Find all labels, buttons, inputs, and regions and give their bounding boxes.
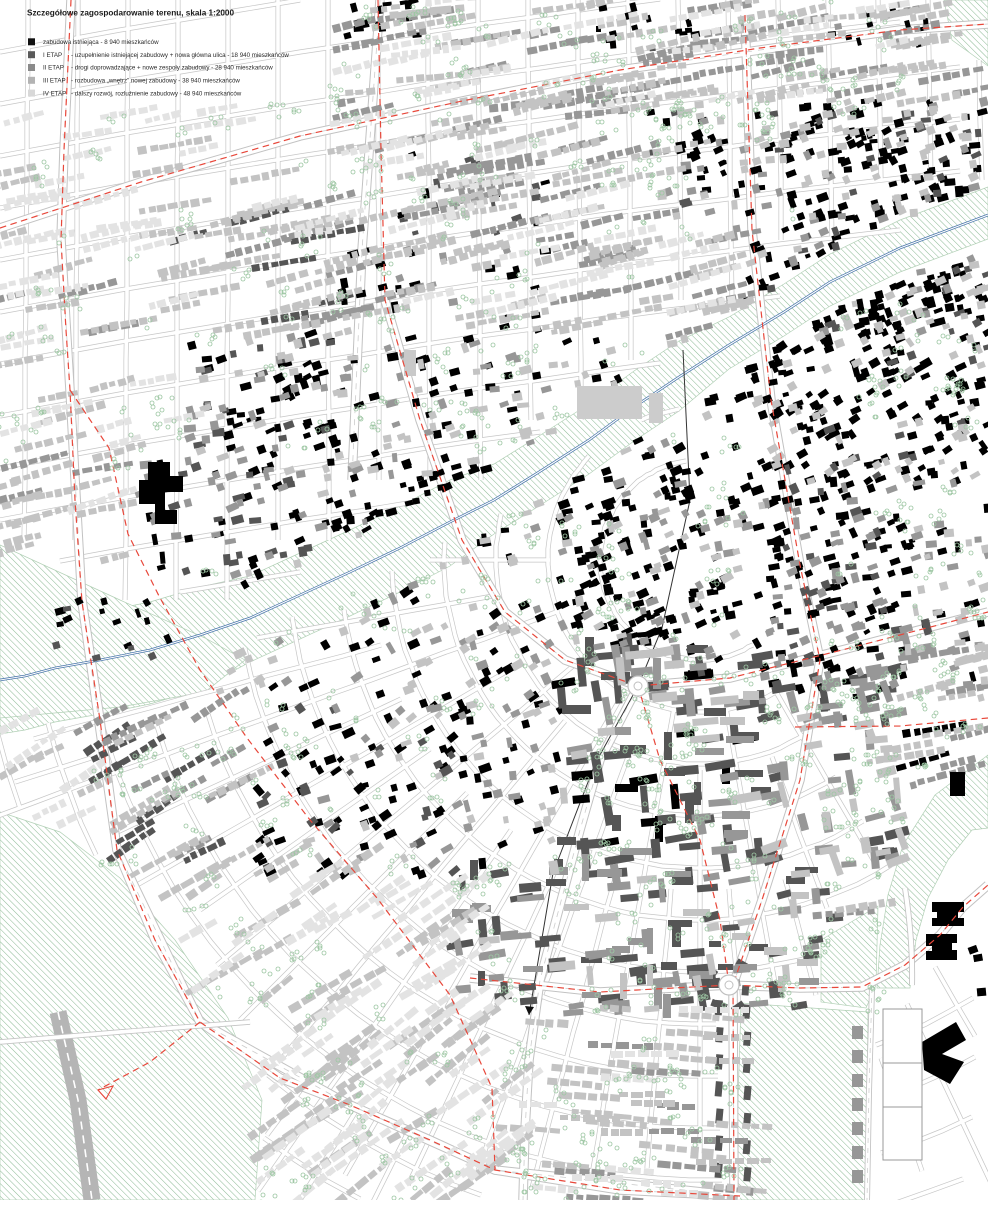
svg-text:III ETAP: III ETAP xyxy=(43,78,66,85)
svg-text:- drogi doprowadzające + nowe: - drogi doprowadzające + nowe zespoły za… xyxy=(71,65,273,72)
svg-text:- uzupełnienie istniejącej zab: - uzupełnienie istniejącej zabudowy + no… xyxy=(71,52,289,59)
svg-text:- dalszy rozwój, rozluźnienie: - dalszy rozwój, rozluźnienie zabudowy -… xyxy=(71,90,242,97)
svg-text:IV ETAP: IV ETAP xyxy=(43,90,66,97)
svg-text:zabudowa istniejąca - 8 940 mi: zabudowa istniejąca - 8 940 mieszkańców xyxy=(43,39,159,46)
svg-text:Szczegółowe zagospodarowanie t: Szczegółowe zagospodarowanie terenu, ska… xyxy=(27,9,234,18)
svg-text:- rozbudowa „wnętrz” nowej zab: - rozbudowa „wnętrz” nowej zabudowy - 38… xyxy=(71,78,240,85)
svg-text:II ETAP: II ETAP xyxy=(43,65,64,72)
svg-text:I ETAP: I ETAP xyxy=(43,52,62,59)
